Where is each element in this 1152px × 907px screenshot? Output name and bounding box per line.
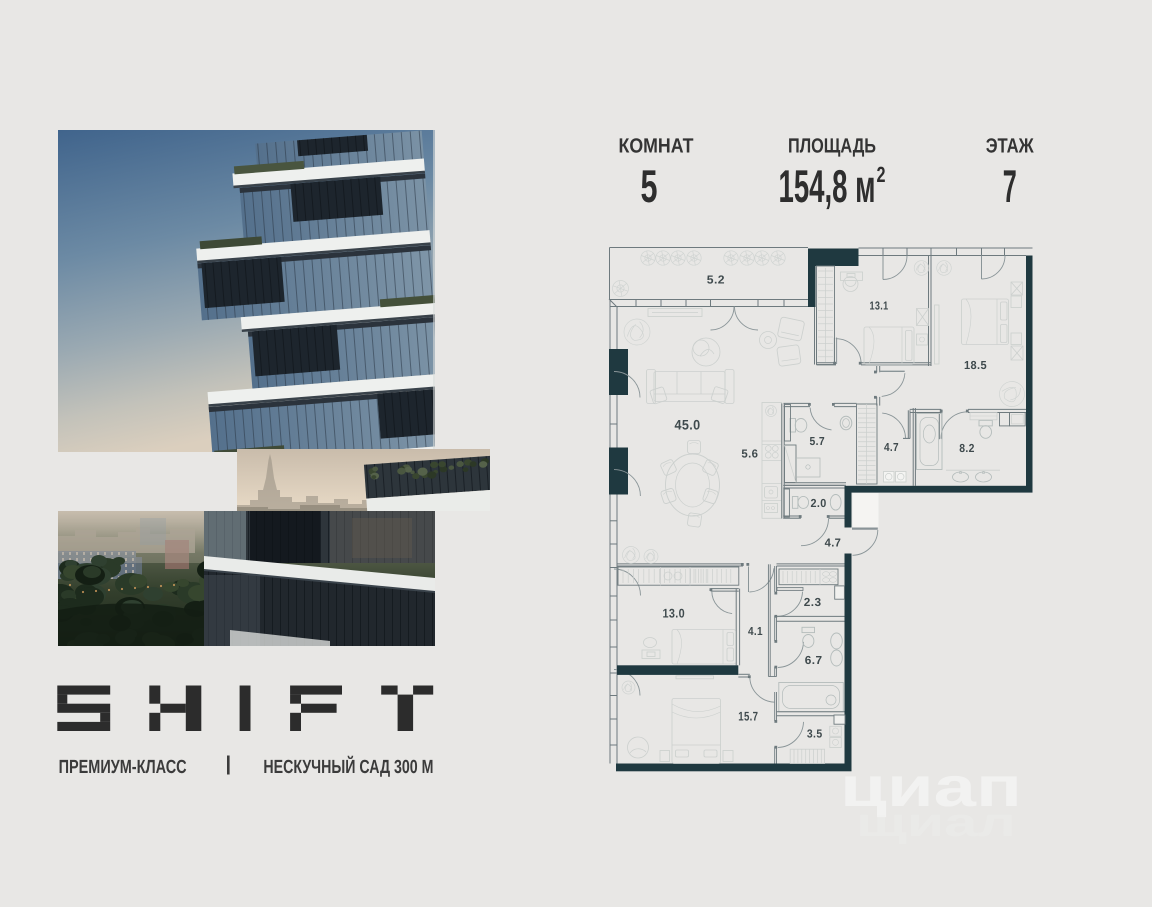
- svg-text:ЭТАЖ: ЭТАЖ: [986, 135, 1034, 158]
- svg-text:15.7: 15.7: [738, 709, 758, 723]
- svg-text:5.7: 5.7: [810, 435, 826, 448]
- svg-text:щиал: щиал: [856, 801, 1016, 845]
- svg-text:5.2: 5.2: [707, 274, 725, 287]
- svg-text:7: 7: [1003, 160, 1017, 212]
- svg-text:6.7: 6.7: [805, 654, 823, 667]
- svg-text:5: 5: [641, 160, 658, 212]
- svg-text:5.6: 5.6: [741, 447, 758, 460]
- svg-text:2.0: 2.0: [811, 497, 827, 510]
- svg-text:13.1: 13.1: [870, 300, 889, 313]
- svg-text:18.5: 18.5: [964, 359, 987, 372]
- svg-text:3.5: 3.5: [807, 728, 823, 741]
- svg-text:8.2: 8.2: [959, 442, 975, 455]
- svg-text:2: 2: [877, 162, 886, 187]
- svg-text:ПЛОЩАДЬ: ПЛОЩАДЬ: [788, 135, 876, 158]
- svg-text:ПРЕМИУМ-КЛАСС: ПРЕМИУМ-КЛАСС: [59, 757, 187, 778]
- svg-text:2.3: 2.3: [804, 596, 822, 609]
- svg-text:45.0: 45.0: [675, 418, 701, 433]
- svg-text:13.0: 13.0: [663, 607, 686, 621]
- svg-text:4.7: 4.7: [884, 441, 899, 454]
- svg-text:154,8 м: 154,8 м: [779, 160, 876, 212]
- svg-text:4.7: 4.7: [825, 537, 842, 550]
- svg-text:НЕСКУЧНЫЙ САД 300 М: НЕСКУЧНЫЙ САД 300 М: [263, 755, 433, 778]
- svg-text:4.1: 4.1: [748, 625, 763, 638]
- svg-text:КОМНАТ: КОМНАТ: [619, 135, 694, 158]
